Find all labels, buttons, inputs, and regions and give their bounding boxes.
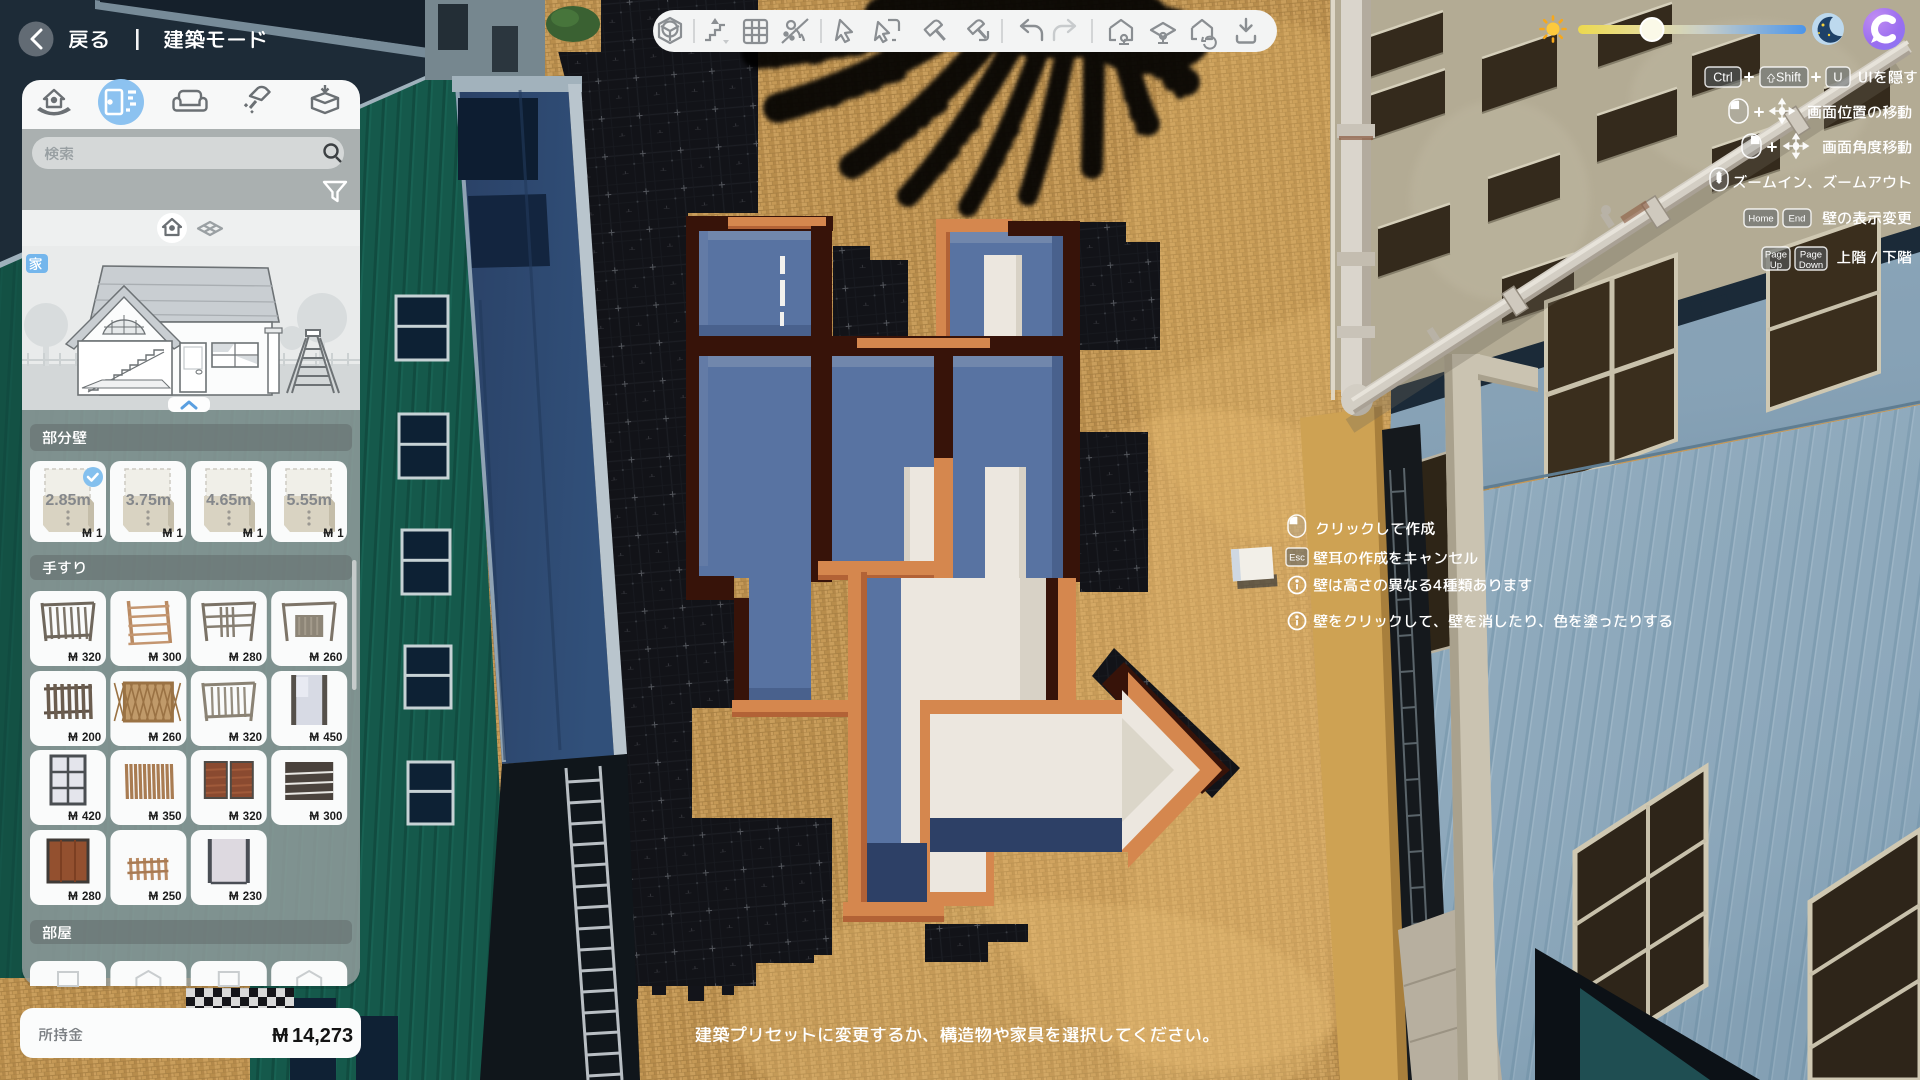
- svg-text:End: End: [1789, 213, 1806, 224]
- svg-text:1: 1: [337, 528, 344, 540]
- svg-text:280: 280: [82, 891, 101, 903]
- svg-text:200: 200: [82, 732, 101, 744]
- svg-text:4.65m: 4.65m: [206, 492, 251, 509]
- svg-text:420: 420: [82, 811, 101, 823]
- svg-text:320: 320: [243, 811, 262, 823]
- svg-text:Up: Up: [1770, 260, 1782, 271]
- svg-text:Shift: Shift: [1776, 71, 1802, 85]
- svg-text:Page: Page: [1765, 250, 1787, 261]
- svg-text:1: 1: [176, 528, 183, 540]
- svg-text:1: 1: [96, 528, 103, 540]
- svg-text:Home: Home: [1748, 213, 1773, 224]
- svg-text:5.55m: 5.55m: [287, 492, 332, 509]
- svg-text:280: 280: [243, 652, 262, 664]
- svg-text:1: 1: [257, 528, 264, 540]
- svg-text:260: 260: [323, 652, 342, 664]
- svg-text:M: M: [272, 1025, 289, 1047]
- svg-text:3.75m: 3.75m: [126, 492, 171, 509]
- svg-text:Down: Down: [1799, 260, 1823, 271]
- svg-text:2.85m: 2.85m: [45, 492, 90, 509]
- svg-text:U: U: [1833, 70, 1842, 85]
- svg-text:320: 320: [243, 732, 262, 744]
- svg-text:320: 320: [82, 652, 101, 664]
- svg-text:14,273: 14,273: [292, 1025, 353, 1047]
- svg-text:Ctrl: Ctrl: [1713, 71, 1732, 85]
- svg-text:450: 450: [323, 732, 342, 744]
- svg-text:260: 260: [162, 732, 181, 744]
- svg-text:250: 250: [162, 891, 181, 903]
- svg-text:Page: Page: [1800, 250, 1822, 261]
- svg-text:Esc: Esc: [1289, 552, 1305, 563]
- svg-text:300: 300: [323, 811, 342, 823]
- svg-text:230: 230: [243, 891, 262, 903]
- svg-text:300: 300: [162, 652, 181, 664]
- svg-text:350: 350: [162, 811, 181, 823]
